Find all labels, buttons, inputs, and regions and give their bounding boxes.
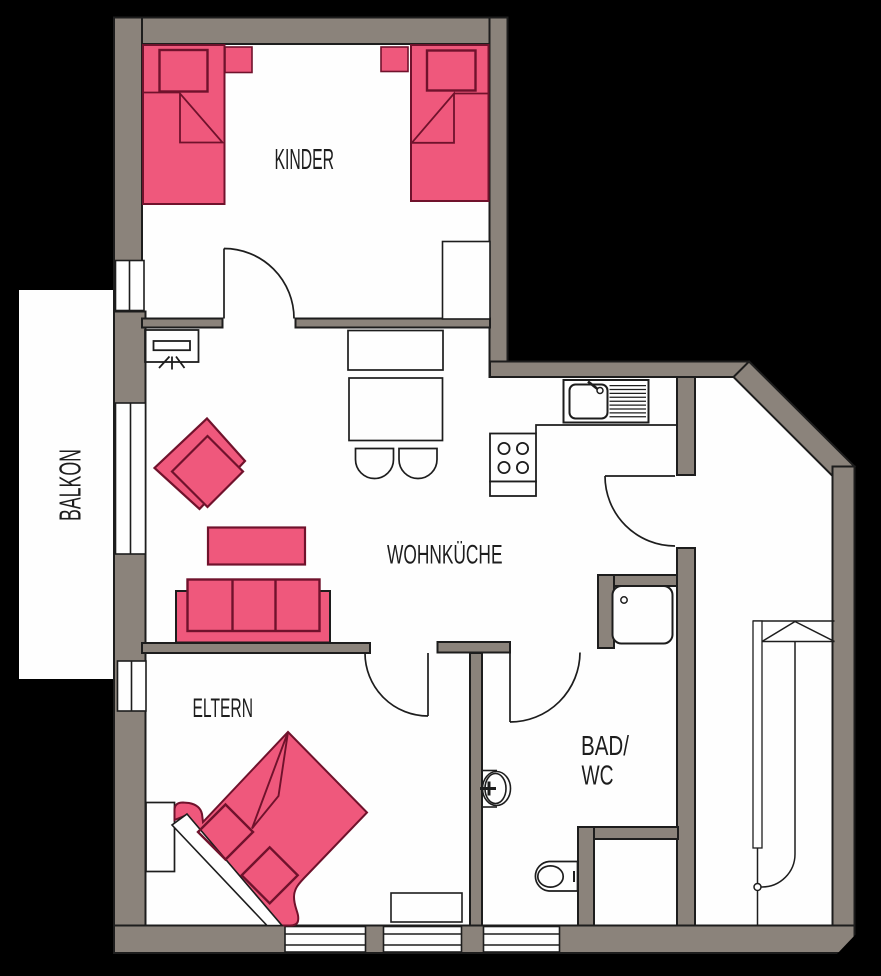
svg-text:WC: WC — [582, 760, 614, 791]
svg-text:ELTERN: ELTERN — [193, 693, 254, 723]
svg-text:WOHNKÜCHE: WOHNKÜCHE — [387, 540, 503, 570]
svg-text:BALKON: BALKON — [53, 449, 88, 521]
svg-text:BAD/: BAD/ — [581, 730, 629, 761]
svg-text:KINDER: KINDER — [275, 144, 335, 176]
